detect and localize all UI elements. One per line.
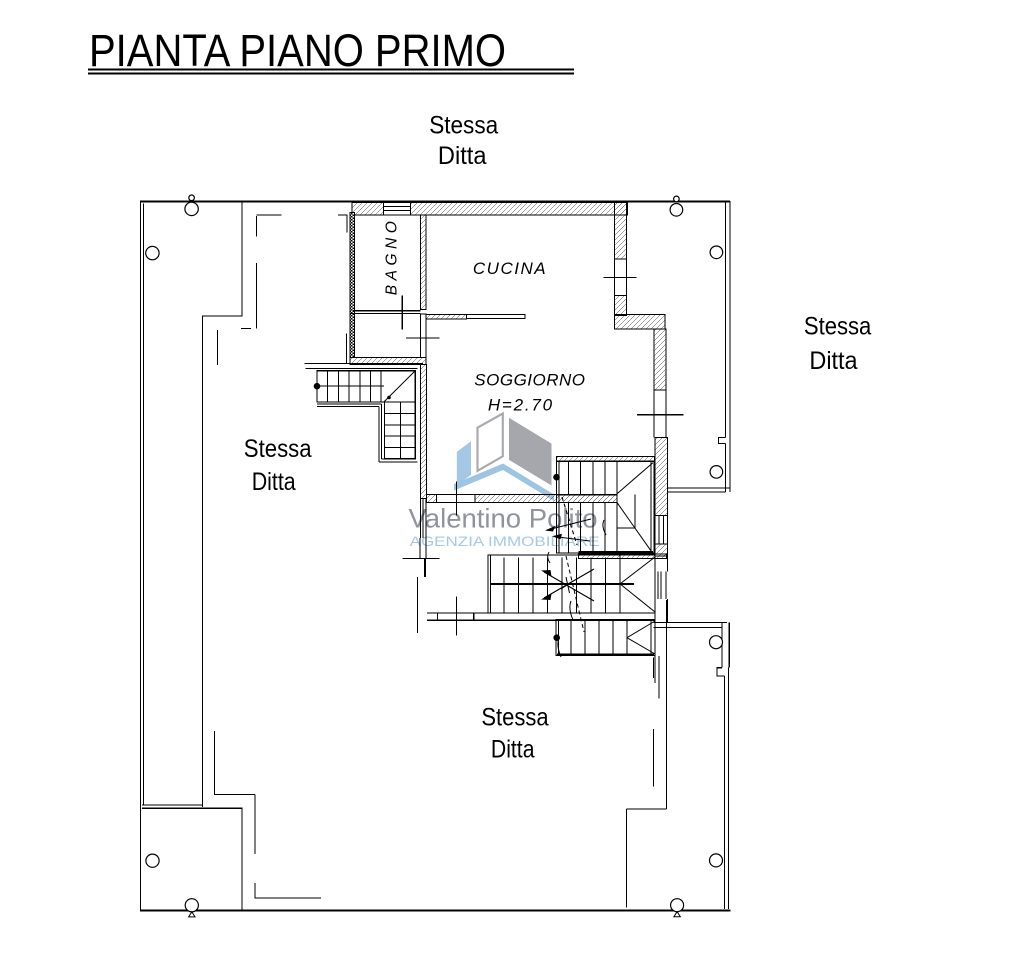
svg-text:Ditta: Ditta <box>438 142 487 170</box>
svg-text:PIANTA PIANO PRIMO: PIANTA PIANO PRIMO <box>89 25 506 76</box>
svg-text:Stessa: Stessa <box>429 112 498 140</box>
svg-text:AGENZIA IMMOBILIARE: AGENZIA IMMOBILIARE <box>410 533 600 549</box>
svg-text:Stessa: Stessa <box>804 313 872 341</box>
svg-text:BAGNO: BAGNO <box>384 217 401 295</box>
svg-text:H=2.70: H=2.70 <box>488 396 554 415</box>
svg-text:Ditta: Ditta <box>809 347 857 375</box>
svg-text:Stessa: Stessa <box>481 703 548 731</box>
svg-text:Ditta: Ditta <box>491 735 535 763</box>
svg-text:Stessa: Stessa <box>244 435 312 463</box>
svg-text:Ditta: Ditta <box>252 468 296 496</box>
svg-text:SOGGIORNO: SOGGIORNO <box>474 371 585 390</box>
svg-text:CUCINA: CUCINA <box>473 259 547 278</box>
